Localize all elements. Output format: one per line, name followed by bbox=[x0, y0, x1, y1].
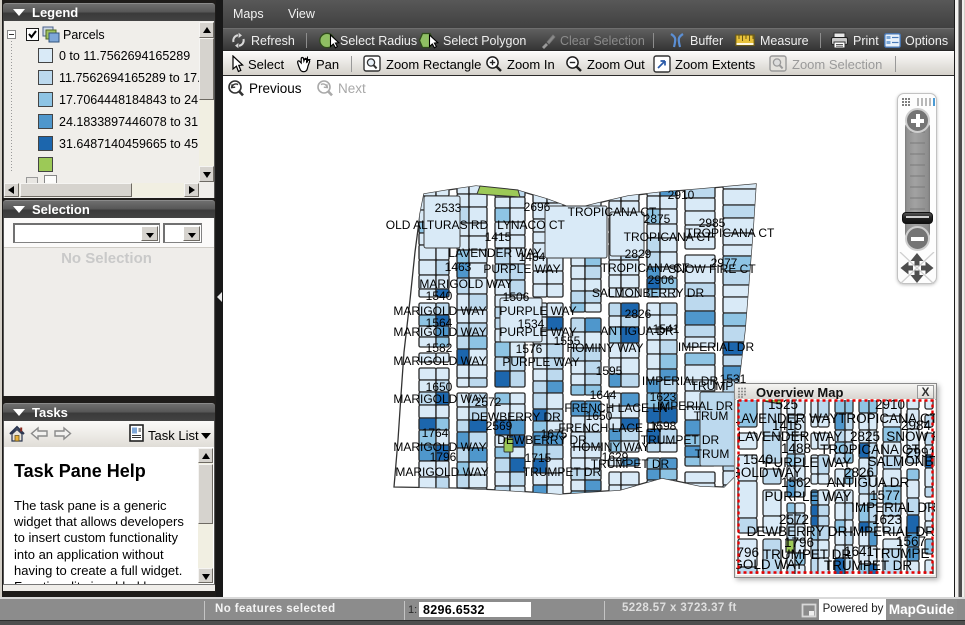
svg-text:1488: 1488 bbox=[781, 441, 811, 456]
svg-text:2696: 2696 bbox=[524, 200, 551, 214]
svg-text:SALMONBE: SALMONBE bbox=[867, 454, 935, 469]
svg-text:1595: 1595 bbox=[596, 364, 623, 378]
svg-text:1641: 1641 bbox=[844, 544, 874, 559]
svg-text:TRUMPET DR: TRUMPET DR bbox=[523, 465, 602, 479]
svg-text:1715: 1715 bbox=[525, 451, 552, 465]
svg-text:TRUMP: TRUMP bbox=[691, 379, 734, 393]
svg-text:MARIGOLD WAY: MARIGOLD WAY bbox=[393, 392, 486, 406]
svg-text:TRUMPET DR: TRUMPET DR bbox=[591, 457, 670, 471]
svg-text:MARIGOLD WAY: MARIGOLD WAY bbox=[395, 465, 488, 479]
svg-text:2569: 2569 bbox=[486, 419, 513, 433]
svg-text:SALMONBERRY DR: SALMONBERRY DR bbox=[592, 286, 705, 300]
svg-text:TRUMPET DR: TRUMPET DR bbox=[824, 558, 913, 573]
svg-text:2572: 2572 bbox=[475, 395, 502, 409]
svg-text:1562: 1562 bbox=[781, 475, 811, 490]
svg-text:FRENCH LACE LN: FRENCH LACE LN bbox=[564, 401, 667, 415]
svg-text:2875: 2875 bbox=[644, 212, 671, 226]
svg-text:2906: 2906 bbox=[648, 273, 675, 287]
svg-text:TRUM: TRUM bbox=[694, 409, 729, 423]
svg-text:2910: 2910 bbox=[668, 188, 695, 202]
svg-text:1764: 1764 bbox=[422, 426, 449, 440]
svg-text:TRUM: TRUM bbox=[695, 447, 730, 461]
svg-text:TRUMPET DR: TRUMPET DR bbox=[641, 433, 720, 447]
svg-text:1506: 1506 bbox=[503, 290, 530, 304]
svg-text:1541: 1541 bbox=[653, 322, 680, 336]
svg-text:PURPLE WAY: PURPLE WAY bbox=[502, 355, 579, 369]
svg-text:1644: 1644 bbox=[590, 388, 617, 402]
svg-text:1598: 1598 bbox=[650, 419, 677, 433]
svg-text:1540: 1540 bbox=[426, 289, 453, 303]
svg-text:1463: 1463 bbox=[445, 260, 472, 274]
svg-text:TROPICANA CT: TROPICANA CT bbox=[686, 226, 775, 240]
svg-text:PURPLE WAY: PURPLE WAY bbox=[499, 304, 576, 318]
svg-text:MARIGOLD WAY: MARIGOLD WAY bbox=[393, 325, 486, 339]
svg-text:1415: 1415 bbox=[485, 230, 512, 244]
svg-text:1796: 1796 bbox=[430, 450, 457, 464]
svg-text:OLD ALTURAS RD: OLD ALTURAS RD bbox=[386, 218, 489, 232]
svg-text:PURPLE WAY: PURPLE WAY bbox=[764, 489, 851, 504]
svg-text:2826: 2826 bbox=[625, 307, 652, 321]
svg-text:2829: 2829 bbox=[625, 247, 652, 261]
svg-text:SNOW FIRE CT: SNOW FIRE CT bbox=[668, 262, 756, 276]
svg-text:2533: 2533 bbox=[435, 201, 462, 215]
svg-text:1582: 1582 bbox=[426, 341, 453, 355]
svg-text:IMPERIAL DR: IMPERIAL DR bbox=[678, 340, 755, 354]
svg-text:1576: 1576 bbox=[516, 342, 543, 356]
svg-text:GOLD WAY: GOLD WAY bbox=[736, 557, 804, 572]
svg-text:MARIGOLD WAY: MARIGOLD WAY bbox=[393, 354, 486, 368]
svg-text:HOMINY WAY: HOMINY WAY bbox=[566, 341, 643, 355]
svg-text:PURPLE WAY: PURPLE WAY bbox=[483, 262, 560, 276]
